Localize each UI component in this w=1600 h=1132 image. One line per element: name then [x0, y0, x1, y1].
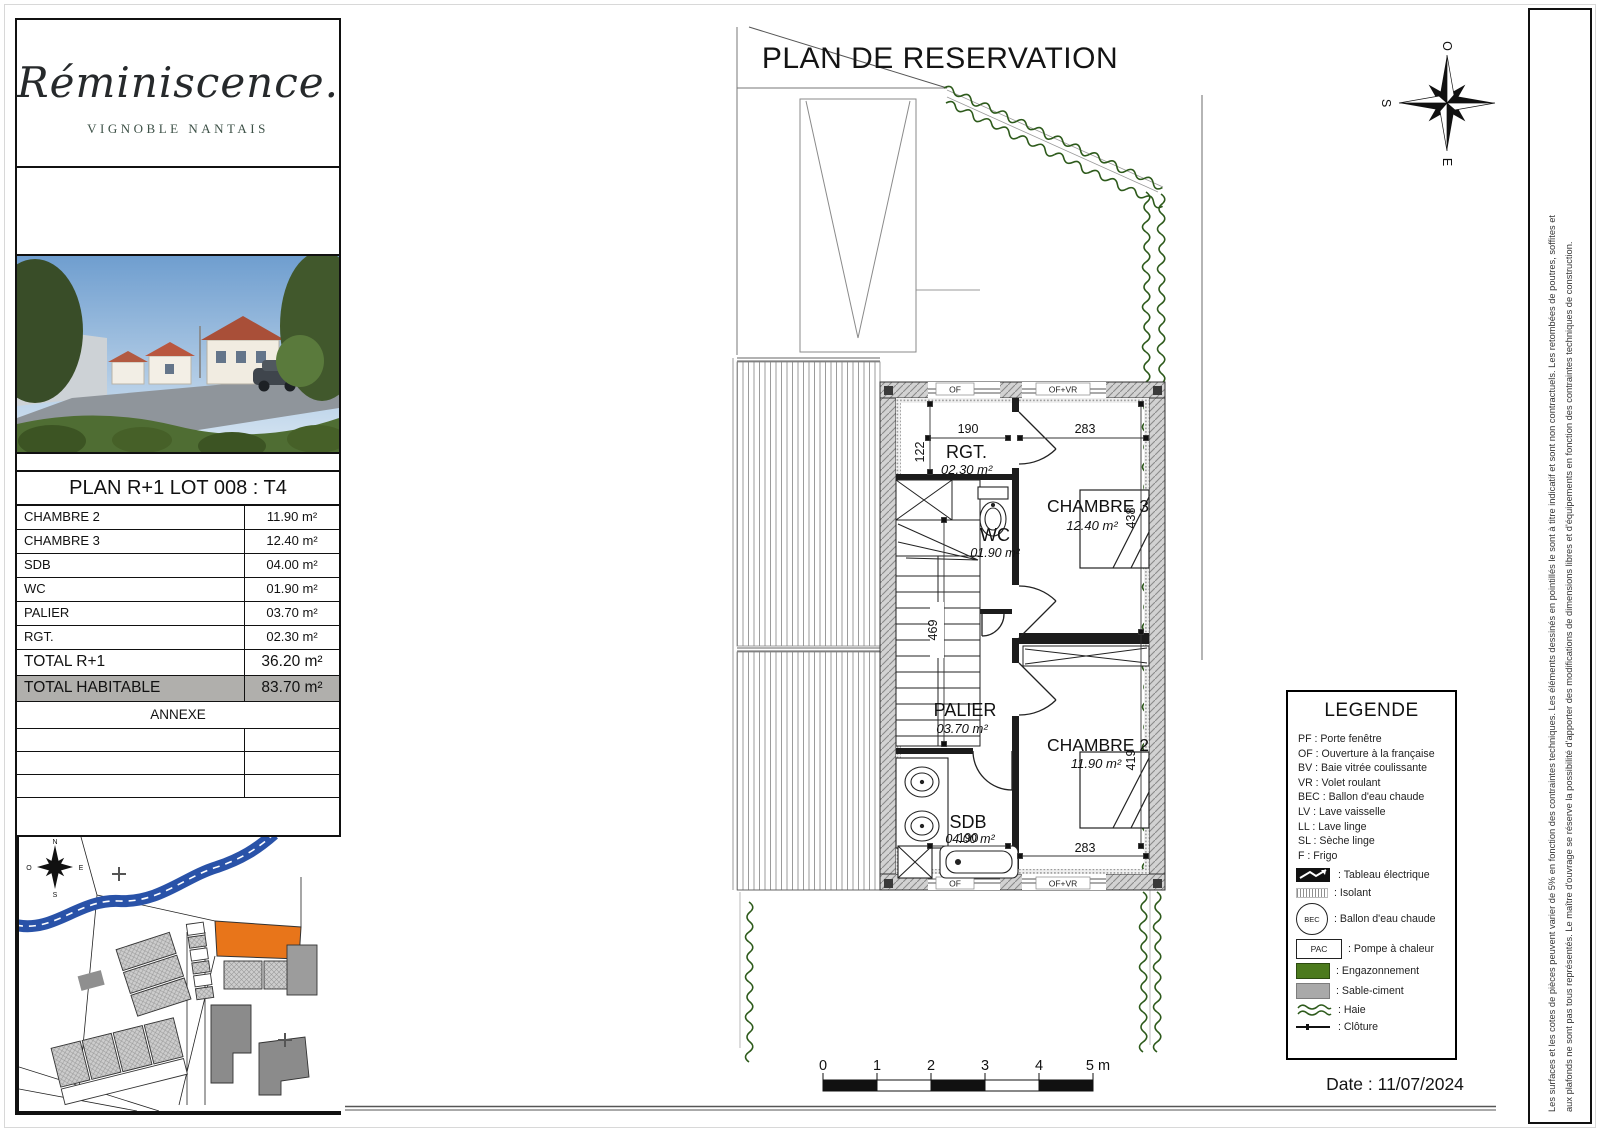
room-name-palier: PALIER — [934, 700, 997, 720]
room-area: 03.70 m² — [244, 602, 339, 625]
legend-item: PAC : Pompe à chaleur — [1296, 939, 1455, 959]
room-area: 12.40 m² — [244, 530, 339, 553]
legend-item-label: : Sable-ciment — [1336, 985, 1404, 997]
tree-right-light — [276, 335, 324, 387]
legend-item-label: : Tableau électrique — [1338, 869, 1430, 881]
window-top-left: OF — [928, 382, 1000, 398]
legend-panel: LEGENDE PF : Porte fenêtre OF : Ouvertur… — [1286, 690, 1457, 1060]
brand-subtitle: VIGNOBLE NANTAIS — [17, 121, 339, 137]
legend-item-label: : Isolant — [1334, 887, 1371, 899]
legend-item: : Engazonnement — [1296, 963, 1455, 979]
total-value: 36.20 m² — [244, 650, 339, 675]
annexe-empty-row — [17, 752, 339, 775]
legend-item: : Tableau électrique — [1296, 867, 1455, 883]
scale-tick: 1 — [873, 1058, 881, 1074]
summary-title: PLAN R+1 LOT 008 : T4 — [17, 470, 339, 506]
legend-item-label: : Engazonnement — [1336, 965, 1419, 977]
wardrobe — [1023, 646, 1149, 666]
dim-label: 469 — [926, 620, 940, 641]
floorplan: OF OF+VR OF OF+VR — [880, 382, 1165, 890]
legend-item: : Haie — [1296, 1003, 1455, 1017]
room-area: 04.00 m² — [244, 554, 339, 577]
annexe-header: ANNEXE — [17, 702, 339, 729]
disclaimer-text: Les surfaces et les cotes de pièces peuv… — [1544, 22, 1577, 1112]
dim-label: 283 — [1075, 841, 1096, 855]
legend-item-label: : Ballon d'eau chaude — [1334, 913, 1436, 925]
sand-cement-swatch — [1296, 983, 1330, 999]
table-row: WC 01.90 m² — [17, 578, 339, 602]
table-row: CHAMBRE 3 12.40 m² — [17, 530, 339, 554]
table-row: CHAMBRE 2 11.90 m² — [17, 506, 339, 530]
scale-tick: 3 — [981, 1058, 989, 1074]
disclaimer-line: Les surfaces et les cotes de pièces peuv… — [1544, 22, 1561, 1112]
disclaimer-strip: Les surfaces et les cotes de pièces peuv… — [1528, 8, 1592, 1124]
legend-abbr-line: LL : Lave linge — [1298, 820, 1455, 835]
room-area: 02.30 m² — [244, 626, 339, 649]
opening-label: OF — [949, 385, 961, 395]
fence-icon — [1296, 1023, 1332, 1031]
opening-label: OF — [949, 879, 961, 889]
grass-swatch — [1296, 963, 1330, 979]
table-row: RGT. 02.30 m² — [17, 626, 339, 650]
water-heater-icon: BEC — [1296, 903, 1328, 935]
opening-label: OF+VR — [1049, 385, 1078, 395]
sidebar-spacer — [17, 168, 339, 252]
table-row: PALIER 03.70 m² — [17, 602, 339, 626]
legend-item-label: : Haie — [1338, 1004, 1366, 1016]
compass-e: E — [79, 865, 84, 872]
hedge-icon — [1296, 1003, 1332, 1017]
brand-logo: Réminiscence. — [17, 58, 339, 107]
insulation-icon — [1296, 888, 1328, 898]
disclaimer-line: aux plafonds ne sont pas tous représenté… — [1561, 22, 1578, 1112]
heat-pump-icon: PAC — [1296, 939, 1342, 959]
legend-abbr-line: BEC : Ballon d'eau chaude — [1298, 790, 1455, 805]
door-wc — [982, 614, 1004, 636]
page-title: PLAN DE RESERVATION — [730, 42, 1150, 76]
door-chambre3 — [1019, 586, 1056, 638]
legend-item: BEC : Ballon d'eau chaude — [1296, 903, 1455, 935]
site-location-map: N O E S — [17, 835, 339, 1113]
scale-tick: 0 — [819, 1058, 827, 1074]
date-label: Date : 11/07/2024 — [1295, 1074, 1495, 1095]
room-label: SDB — [17, 554, 244, 577]
fence-lines — [740, 890, 1150, 1048]
legend-item-label: : Pompe à chaleur — [1348, 943, 1434, 955]
legend-title: LEGENDE — [1288, 700, 1455, 722]
legend-abbr-line: VR : Volet roulant — [1298, 776, 1455, 791]
room-name-rgt: RGT. — [946, 442, 987, 462]
dim-label: 122 — [913, 442, 927, 463]
room-area-wc: 01.90 m² — [970, 546, 1020, 560]
compass-letter-top: O — [1440, 41, 1454, 51]
legend-item-label: : Clôture — [1338, 1021, 1378, 1033]
total-label: TOTAL HABITABLE — [17, 676, 244, 701]
building — [224, 961, 262, 989]
garage-volume — [800, 99, 916, 352]
total-value: 83.70 m² — [244, 676, 339, 701]
room-label: CHAMBRE 2 — [17, 506, 244, 529]
room-area: 11.90 m² — [244, 506, 339, 529]
compass-o: O — [26, 865, 32, 872]
legend-abbr-line: OF : Ouverture à la française — [1298, 747, 1455, 762]
legend-item: : Isolant — [1296, 887, 1455, 899]
room-label: PALIER — [17, 602, 244, 625]
room-name-sdb: SDB — [949, 812, 986, 832]
scale-bar: 0 1 2 3 4 5 m — [819, 1058, 1110, 1091]
compass-rose: O S E N — [1379, 41, 1498, 166]
compass-s: S — [53, 892, 58, 899]
total-habitable-row: TOTAL HABITABLE 83.70 m² — [17, 676, 339, 702]
room-name-chambre3: CHAMBRE 3 — [1047, 496, 1149, 516]
annexe-empty-row — [17, 775, 339, 798]
room-label: CHAMBRE 3 — [17, 530, 244, 553]
total-label: TOTAL R+1 — [17, 650, 244, 675]
table-row: SDB 04.00 m² — [17, 554, 339, 578]
brand-block: Réminiscence. VIGNOBLE NANTAIS — [17, 20, 339, 168]
scale-tick: 4 — [1035, 1058, 1043, 1074]
area-summary-table: PLAN R+1 LOT 008 : T4 CHAMBRE 2 11.90 m²… — [17, 470, 339, 798]
door-chambre2 — [1019, 663, 1056, 715]
room-area-chambre3: 12.40 m² — [1066, 518, 1118, 533]
dim-label: 190 — [958, 422, 979, 436]
scale-end: 5 m — [1086, 1058, 1110, 1074]
compass-letter-left: S — [1379, 99, 1393, 107]
compass-letter-bottom: E — [1440, 158, 1454, 166]
legend-abbr-line: BV : Baie vitrée coulissante — [1298, 761, 1455, 776]
site-map-svg: N O E S — [19, 837, 341, 1111]
legend-abbreviations: PF : Porte fenêtre OF : Ouverture à la f… — [1298, 732, 1455, 863]
room-name-chambre2: CHAMBRE 2 — [1047, 735, 1149, 755]
room-area: 01.90 m² — [244, 578, 339, 601]
room-name-wc: WC — [980, 525, 1010, 545]
room-area-chambre2: 11.90 m² — [1071, 756, 1122, 771]
legend-abbr-line: LV : Lave vaisselle — [1298, 805, 1455, 820]
room-area-palier: 03.70 m² — [936, 721, 988, 736]
legend-item: : Clôture — [1296, 1021, 1455, 1033]
room-label: RGT. — [17, 626, 244, 649]
project-photo — [17, 254, 339, 454]
legend-abbr-line: F : Frigo — [1298, 849, 1455, 864]
room-area-rgt: 02.30 m² — [941, 462, 993, 477]
room-area-sdb: 04.00 m² — [945, 832, 995, 846]
annexe-empty-row — [17, 729, 339, 752]
compass-n: N — [52, 839, 57, 846]
bush — [112, 427, 172, 452]
building-dark — [287, 945, 317, 995]
project-photo-render — [17, 256, 339, 452]
scale-tick: 2 — [927, 1058, 935, 1074]
legend-abbr-line: SL : Sèche linge — [1298, 834, 1455, 849]
total-row: TOTAL R+1 36.20 m² — [17, 650, 339, 676]
dim-label: 283 — [1075, 422, 1096, 436]
window-bottom-right: OF+VR — [1022, 874, 1106, 890]
window-top-right: OF+VR — [1022, 382, 1106, 398]
deck-roof-areas — [733, 358, 880, 890]
legend-abbr-line: PF : Porte fenêtre — [1298, 732, 1455, 747]
electrical-panel-icon — [1296, 867, 1332, 883]
room-label: WC — [17, 578, 244, 601]
door-sdb — [973, 751, 1012, 790]
legend-item: : Sable-ciment — [1296, 983, 1455, 999]
sidebar-panel: Réminiscence. VIGNOBLE NANTAIS — [15, 18, 341, 1115]
opening-label: OF+VR — [1049, 879, 1078, 889]
